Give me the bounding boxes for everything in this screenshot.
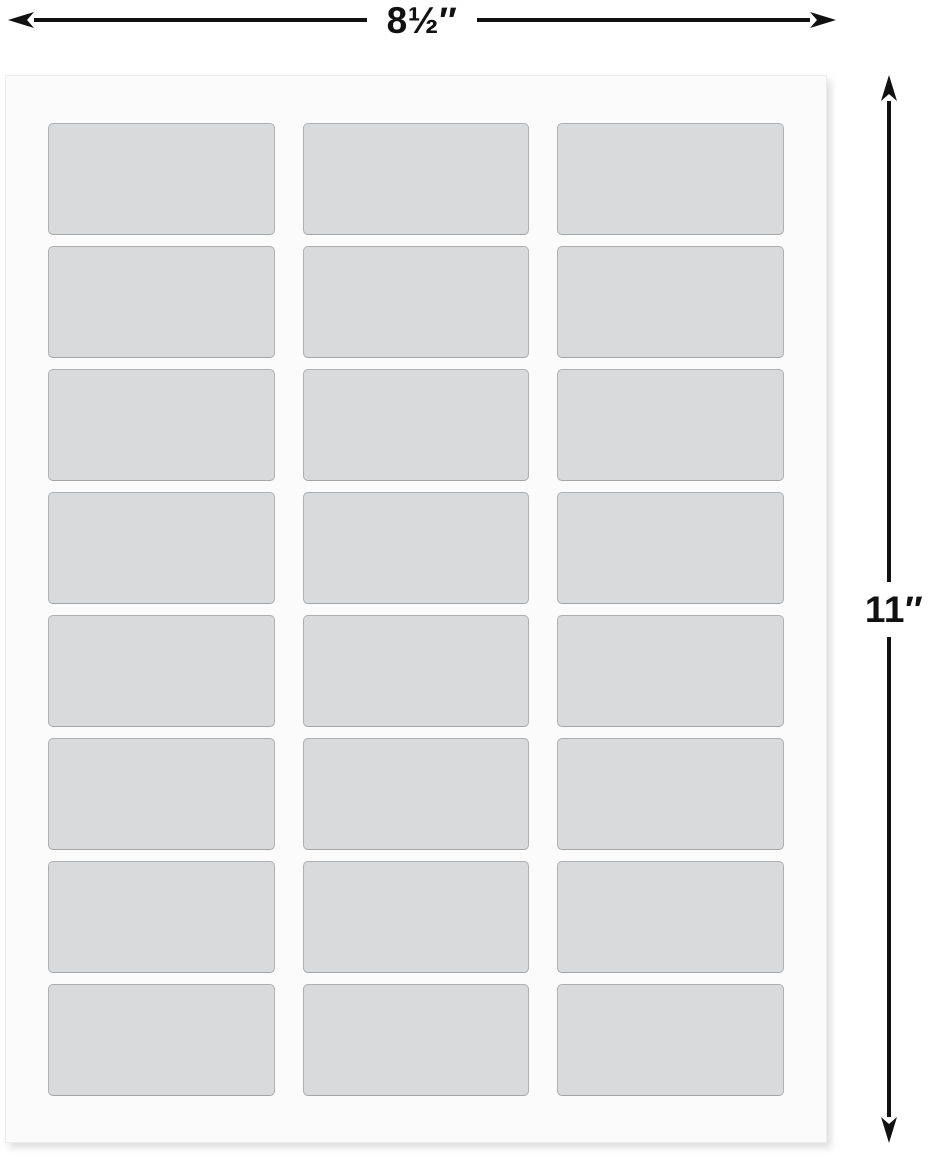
dimension-line bbox=[34, 18, 367, 22]
label-cell bbox=[303, 984, 530, 1096]
width-dimension-label: 8½″ bbox=[387, 2, 458, 39]
page-canvas: { "dimension_annotations": { "width_labe… bbox=[0, 0, 932, 1158]
label-cell bbox=[303, 615, 530, 727]
width-dimension-indicator: 8½″ bbox=[8, 2, 836, 38]
height-dimension-indicator: 11″ bbox=[871, 75, 907, 1143]
label-grid bbox=[6, 76, 826, 1142]
arrow-left-icon bbox=[8, 10, 34, 30]
label-cell bbox=[303, 738, 530, 850]
label-sheet bbox=[5, 75, 827, 1143]
label-cell bbox=[303, 369, 530, 481]
height-dimension-label: 11″ bbox=[865, 591, 923, 628]
label-cell bbox=[303, 123, 530, 235]
label-cell bbox=[48, 123, 275, 235]
arrow-up-icon bbox=[879, 75, 899, 101]
arrow-right-icon bbox=[810, 10, 836, 30]
arrow-down-icon bbox=[879, 1117, 899, 1143]
label-cell bbox=[303, 861, 530, 973]
label-cell bbox=[48, 246, 275, 358]
label-cell bbox=[303, 492, 530, 604]
label-cell bbox=[557, 246, 784, 358]
label-cell bbox=[48, 615, 275, 727]
label-cell bbox=[48, 861, 275, 973]
label-cell bbox=[303, 246, 530, 358]
label-cell bbox=[557, 615, 784, 727]
label-cell bbox=[48, 492, 275, 604]
dimension-line bbox=[887, 637, 891, 1118]
dimension-line bbox=[477, 18, 810, 22]
dimension-line bbox=[887, 101, 891, 582]
label-cell bbox=[557, 984, 784, 1096]
label-cell bbox=[48, 369, 275, 481]
label-cell bbox=[557, 861, 784, 973]
label-cell bbox=[557, 492, 784, 604]
label-cell bbox=[48, 984, 275, 1096]
label-cell bbox=[48, 738, 275, 850]
label-cell bbox=[557, 123, 784, 235]
label-cell bbox=[557, 369, 784, 481]
label-cell bbox=[557, 738, 784, 850]
